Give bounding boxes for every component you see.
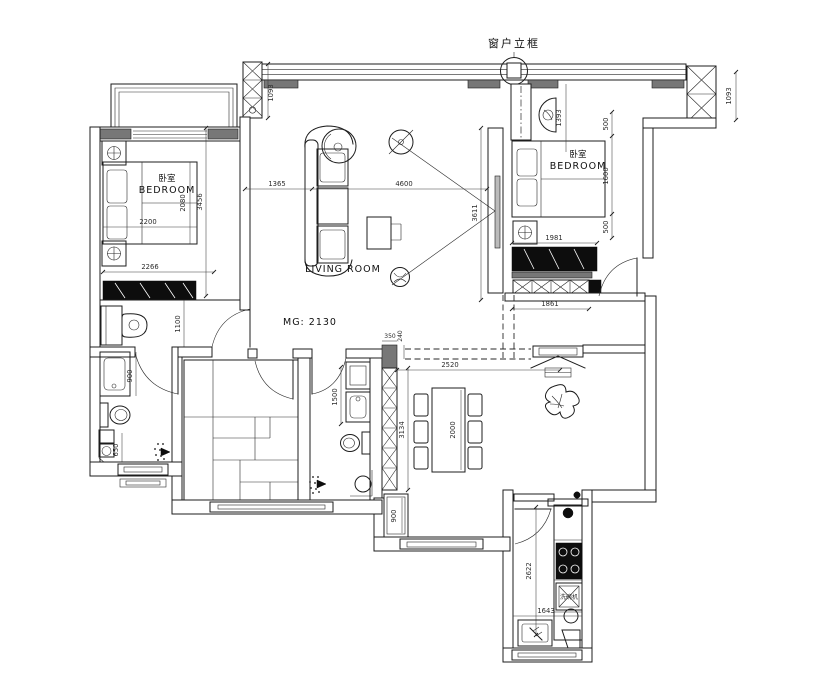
vanity-sink — [346, 392, 370, 422]
nightstand — [102, 141, 126, 165]
hall-cabinet: 900 — [384, 494, 408, 537]
entry-threshold — [533, 346, 583, 357]
dim-dining-width: 2520 — [441, 361, 458, 369]
middle-bathroom: 1500 — [309, 362, 372, 496]
floor-plan-page: 窗户立框 1093 1093 — [0, 0, 829, 700]
nightstand — [513, 221, 537, 244]
dim-vanity-left: 900 — [126, 370, 134, 383]
dim-living-depth: 3611 — [471, 204, 479, 221]
entry-hall — [531, 345, 645, 418]
dishwasher: 洗碗机 — [556, 583, 582, 610]
sofa — [305, 126, 353, 276]
left-bathroom: 900 650 — [90, 352, 182, 487]
living-room: LIVING ROOM MG: 2130 1365 4600 3611 — [243, 126, 503, 328]
shower-head-spray — [309, 476, 326, 494]
wardrobe — [103, 281, 196, 300]
hall-walls-doors — [90, 309, 383, 399]
bedroom-left-door — [212, 309, 250, 347]
dressing-table — [101, 306, 122, 345]
floor-drain — [350, 470, 372, 496]
dim-dining-depth: 3134 — [398, 421, 406, 438]
corner-bin — [562, 630, 580, 648]
dim-hall-column: 350 — [384, 333, 396, 340]
dim-kitchen-width: 1643 — [537, 607, 554, 615]
bedroom-left-label-zh: 卧室 — [158, 173, 176, 184]
toilet — [100, 403, 130, 427]
cooktop — [556, 543, 582, 579]
kitchen: 洗碗机 1643 2622 — [503, 492, 592, 662]
dim-table-length: 2000 — [449, 421, 457, 438]
wardrobe — [512, 247, 597, 278]
dim-living-width: 4600 — [395, 180, 412, 188]
right-bedroom: 卧室 BEDROOM 1393 500 1600 500 1981 1861 — [505, 84, 645, 311]
coffee-table — [367, 217, 401, 249]
tatami-room-door — [255, 361, 293, 399]
dim-vanity-mid: 1500 — [331, 388, 339, 405]
left-bedroom: 卧室 BEDROOM 2200 2266 2080 3456 1100 — [100, 126, 240, 347]
dim-top-left-column: 1093 — [267, 84, 275, 101]
entry-canopy — [531, 356, 585, 377]
toilet — [341, 432, 371, 454]
dim-sofa-offset: 1365 — [268, 180, 285, 188]
dim-bed-left-width: 2200 — [139, 218, 156, 226]
armchair — [539, 98, 556, 132]
dim-hall-cabinet: 900 — [390, 510, 398, 523]
dim-gap-top: 500 — [602, 118, 610, 131]
dishwasher-label: 洗碗机 — [560, 593, 578, 601]
window-frame-marker: 窗户立框 — [488, 36, 540, 85]
tatami-bedroom — [172, 360, 382, 514]
double-bed — [512, 141, 605, 217]
dim-hall-beam: 240 — [397, 330, 404, 342]
dining-table: 2000 — [432, 388, 465, 472]
kitchen-sink — [518, 620, 552, 646]
dressing-chair — [122, 314, 147, 338]
living-room-label: LIVING ROOM — [305, 264, 381, 275]
top-window-wall: 窗户立框 1093 1093 — [243, 36, 738, 122]
dim-gap-bottom: 500 — [602, 221, 610, 234]
bedroom-right-label-zh: 卧室 — [569, 149, 587, 160]
tv-wall — [392, 128, 503, 293]
floor-plan-canvas: 窗户立框 1093 1093 — [0, 0, 829, 700]
dim-wardrobe-right: 1981 — [545, 234, 562, 242]
dining-chairs — [414, 394, 482, 469]
plant-icon — [545, 385, 579, 419]
round-armchair — [322, 129, 356, 163]
dim-bed-right: 1600 — [602, 167, 610, 184]
nightstand — [102, 241, 126, 266]
column-top-right — [687, 66, 716, 122]
dim-dressing-nook: 1100 — [174, 315, 182, 332]
dim-bedroom-left-width: 2266 — [141, 263, 158, 271]
balcony-bay-window — [90, 84, 240, 141]
kitchen-door — [515, 509, 551, 544]
mg-note: MG: 2130 — [283, 317, 337, 328]
dim-bed-left-depth: 2080 — [179, 194, 187, 211]
side-stool — [391, 268, 410, 287]
column-top-left — [243, 62, 262, 118]
kitchen-sliding-door — [514, 492, 588, 506]
dim-top-right-column: 1093 — [725, 87, 733, 104]
shower-head-spray — [154, 443, 170, 461]
bedroom-right-label-en: BEDROOM — [550, 161, 607, 172]
dim-shower-left: 650 — [112, 444, 120, 457]
braced-column-strip: 350 240 — [382, 330, 404, 490]
closet — [511, 84, 531, 140]
window-frame-label: 窗户立框 — [488, 36, 540, 50]
bedroom-right-door — [599, 258, 637, 296]
mirror-cabinet — [346, 362, 370, 389]
dim-armchair: 1393 — [555, 109, 563, 126]
dim-bedroom-left-depth: 3456 — [196, 193, 204, 210]
dim-cabinet-right: 1861 — [541, 300, 558, 308]
dim-kitchen-depth: 2622 — [525, 562, 533, 579]
